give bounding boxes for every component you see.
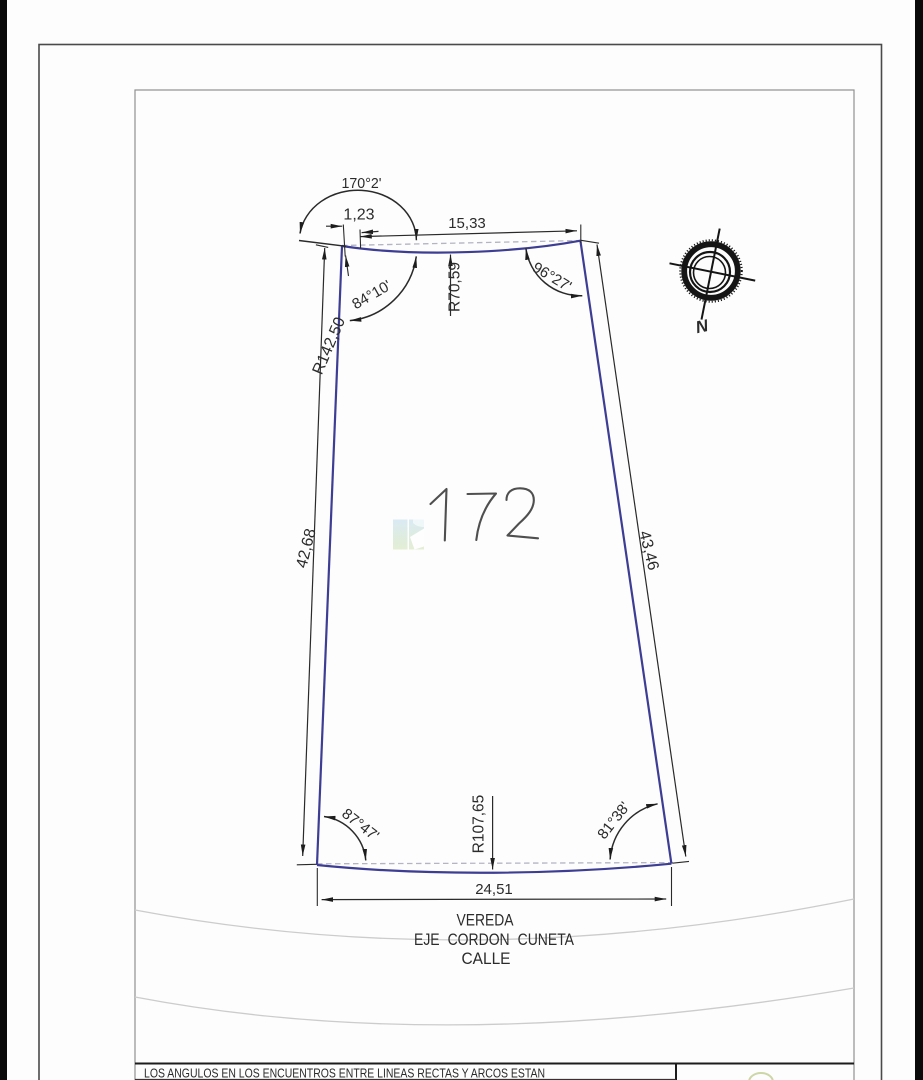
svg-text:24,51: 24,51 xyxy=(475,881,513,898)
svg-text:VEREDA: VEREDA xyxy=(457,911,515,930)
svg-text:170°2': 170°2' xyxy=(342,176,382,192)
svg-text:84°10': 84°10' xyxy=(349,277,394,313)
svg-text:CALLE: CALLE xyxy=(462,949,511,968)
svg-text:R107,65: R107,65 xyxy=(471,795,488,854)
svg-text:15,33: 15,33 xyxy=(448,215,486,232)
svg-text:N: N xyxy=(694,316,711,337)
svg-text:43,46: 43,46 xyxy=(635,529,661,572)
svg-text:LOS ANGULOS EN LOS ENCUENTROS: LOS ANGULOS EN LOS ENCUENTROS ENTRE LINE… xyxy=(144,1067,545,1080)
svg-text:96°27': 96°27' xyxy=(529,259,574,295)
svg-text:EJE CORDON CUNETA: EJE CORDON CUNETA xyxy=(414,930,575,949)
svg-text:R142,50: R142,50 xyxy=(310,315,349,377)
svg-text:R70,59: R70,59 xyxy=(447,262,464,312)
svg-text:1,23: 1,23 xyxy=(343,207,374,224)
svg-text:42,68: 42,68 xyxy=(294,527,320,570)
